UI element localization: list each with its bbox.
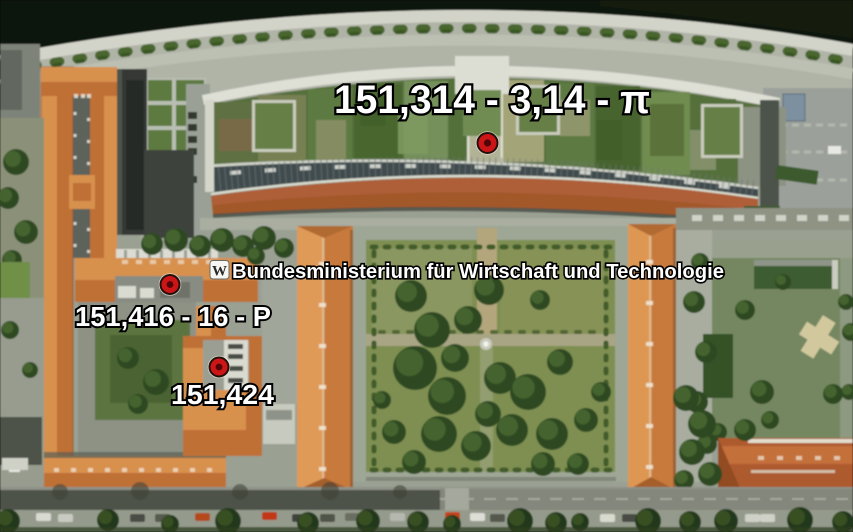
svg-text:151,314 - 3,14 - π: 151,314 - 3,14 - π: [334, 78, 650, 122]
svg-text:151,424: 151,424: [171, 379, 274, 410]
svg-text:W: W: [212, 264, 227, 280]
svg-text:151,416 - 16 - P: 151,416 - 16 - P: [75, 301, 271, 332]
svg-text:Bundesministerium für Wirtscha: Bundesministerium für Wirtschaft und Tec…: [232, 260, 724, 283]
